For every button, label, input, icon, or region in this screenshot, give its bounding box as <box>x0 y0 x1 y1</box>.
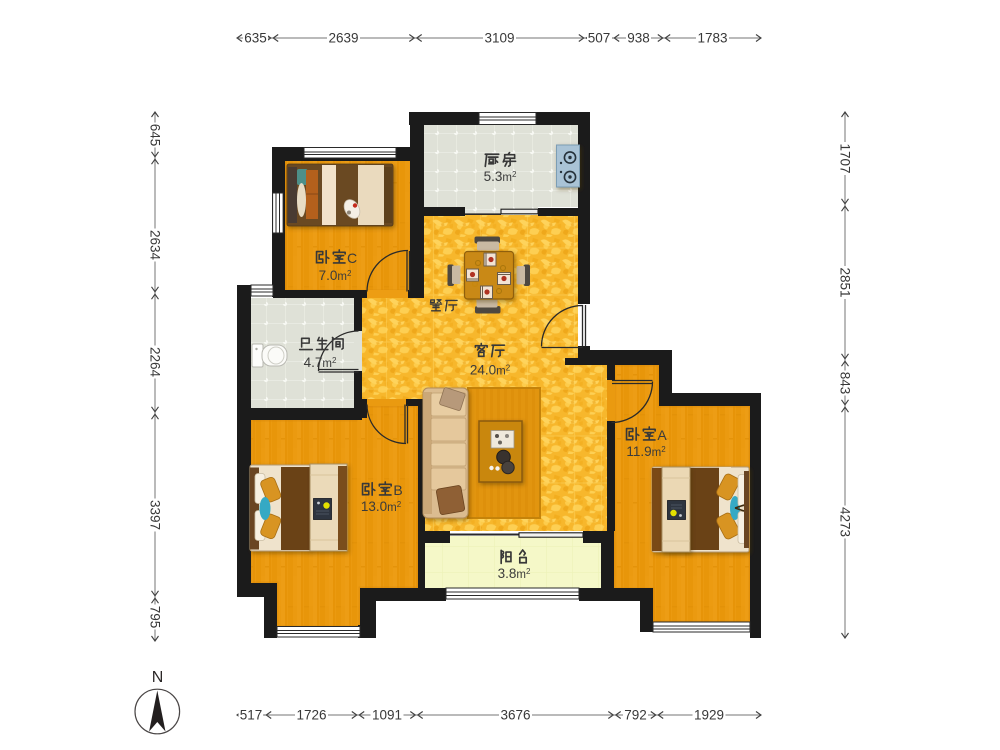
svg-text:13.0m2: 13.0m2 <box>361 499 402 514</box>
svg-text:5.3m2: 5.3m2 <box>484 169 517 184</box>
svg-text:517: 517 <box>240 708 263 723</box>
svg-text:2264: 2264 <box>148 347 163 378</box>
svg-text:645: 645 <box>148 124 163 147</box>
svg-text:3109: 3109 <box>484 31 514 46</box>
svg-text:2851: 2851 <box>838 267 853 297</box>
svg-text:B: B <box>393 482 402 498</box>
svg-text:938: 938 <box>627 31 650 46</box>
svg-text:792: 792 <box>624 708 647 723</box>
svg-text:1726: 1726 <box>296 708 326 723</box>
svg-text:24.0m2: 24.0m2 <box>470 363 511 378</box>
svg-text:635: 635 <box>244 31 267 46</box>
svg-text:1783: 1783 <box>697 31 727 46</box>
svg-text:11.9m2: 11.9m2 <box>626 444 666 459</box>
svg-text:2639: 2639 <box>328 31 358 46</box>
svg-text:7.0m2: 7.0m2 <box>319 268 352 283</box>
svg-text:843: 843 <box>838 372 853 395</box>
svg-text:3397: 3397 <box>148 500 163 530</box>
svg-text:795: 795 <box>148 606 163 629</box>
svg-text:3.8m2: 3.8m2 <box>498 566 531 581</box>
svg-text:4.7m2: 4.7m2 <box>304 355 337 370</box>
svg-text:4273: 4273 <box>838 507 853 537</box>
svg-text:3676: 3676 <box>500 708 530 723</box>
svg-text:1091: 1091 <box>372 708 402 723</box>
svg-text:C: C <box>347 250 357 266</box>
svg-text:N: N <box>152 669 164 686</box>
svg-text:A: A <box>657 427 667 443</box>
svg-text:1929: 1929 <box>694 708 724 723</box>
svg-text:2634: 2634 <box>148 230 163 261</box>
svg-text:507: 507 <box>588 31 611 46</box>
svg-text:1707: 1707 <box>838 143 853 173</box>
